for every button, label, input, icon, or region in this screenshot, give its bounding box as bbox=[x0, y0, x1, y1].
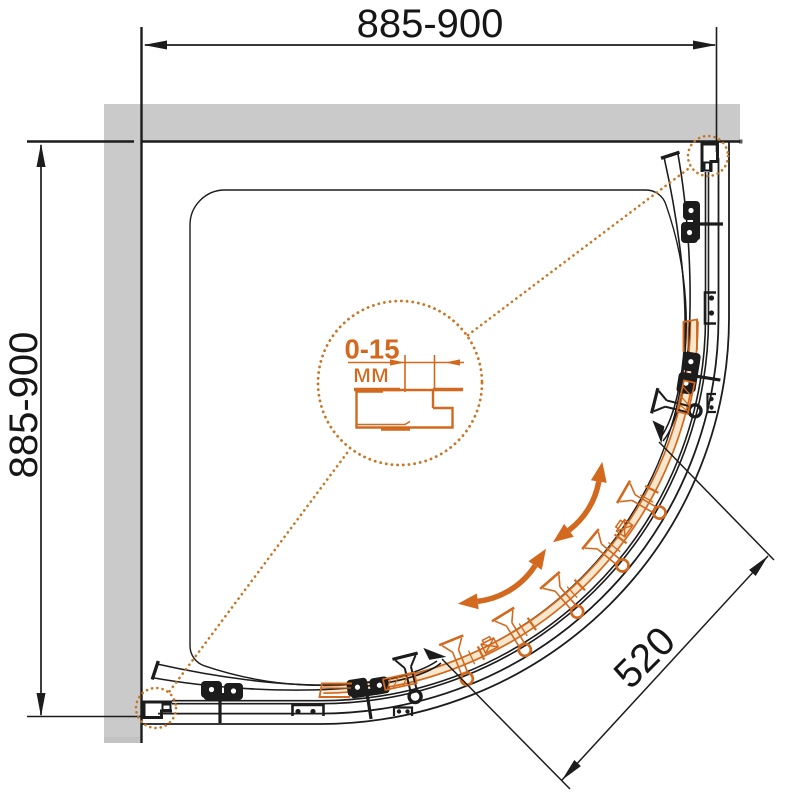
svg-text:885-900: 885-900 bbox=[2, 332, 46, 479]
svg-text:885-900: 885-900 bbox=[357, 2, 504, 46]
